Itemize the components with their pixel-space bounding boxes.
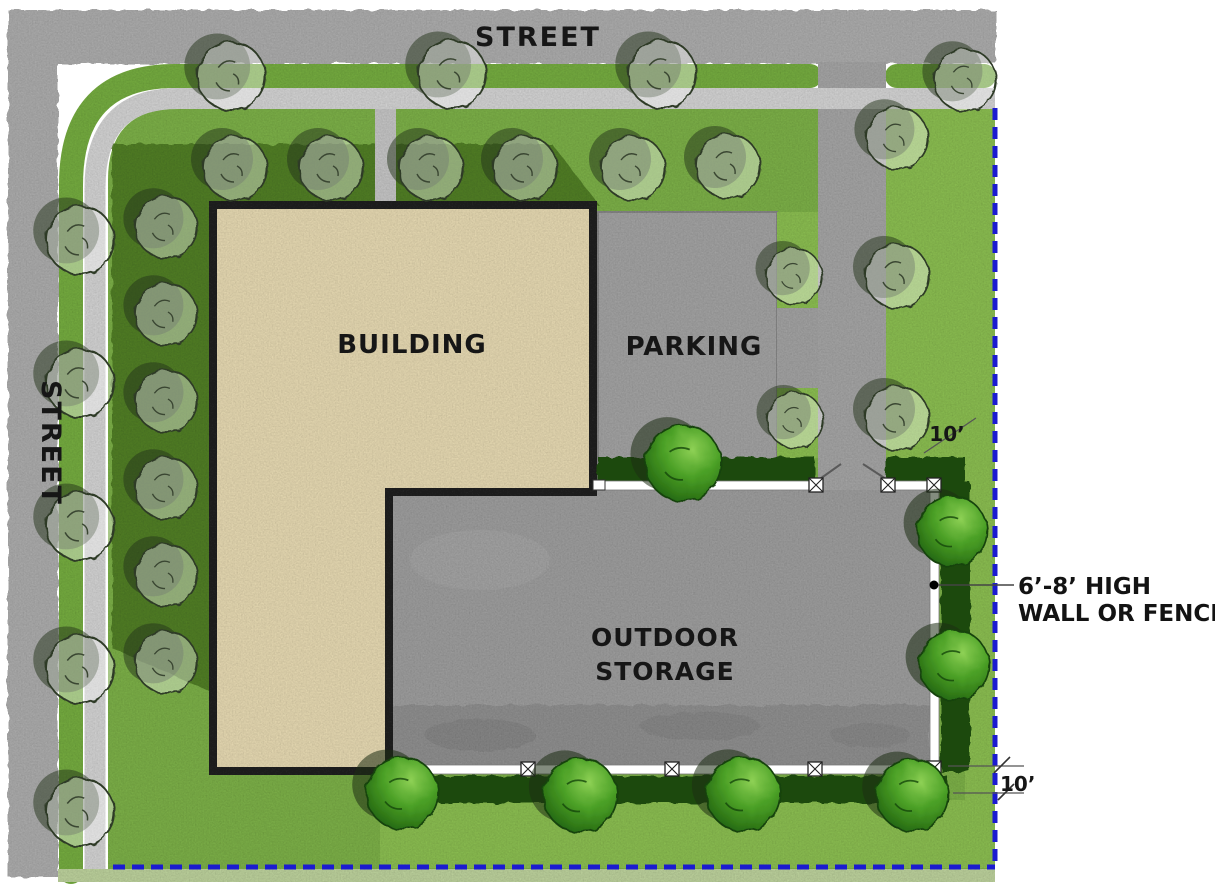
street-label-left: STREET (35, 380, 66, 506)
hedge-south (372, 776, 948, 803)
callout-anchor-dot (930, 581, 939, 590)
callout-line1: 6’-8’ HIGH (1018, 574, 1151, 600)
storage-label-line2: STORAGE (595, 657, 735, 686)
site-plan-page: 10’ 10’ 6’-8’ HIGH WALL OR FENCE STREET … (0, 0, 1215, 884)
lawn-pale-understrip (58, 869, 995, 882)
street-label-top: STREET (475, 22, 601, 53)
dim-east-label: 10’ (929, 422, 964, 446)
storage-stain (425, 719, 535, 751)
fence-post-icon (809, 478, 823, 492)
fence-post-icon (808, 762, 822, 776)
fence-end-cap (593, 480, 605, 490)
hedge-north-east (886, 457, 965, 482)
storage-stain (640, 712, 760, 740)
parking-label: PARKING (626, 332, 763, 362)
storage-light-patch (410, 530, 550, 590)
storage-label-line1: OUTDOOR (591, 623, 739, 652)
fence-post-icon (665, 762, 679, 776)
dim-south-label: 10’ (1000, 772, 1035, 796)
parking-driveway-connector (777, 308, 818, 388)
callout-line2: WALL OR FENCE (1018, 601, 1215, 627)
storage-stain (830, 723, 910, 747)
site-plan-drawing: 10’ 10’ 6’-8’ HIGH WALL OR FENCE STREET … (0, 0, 1215, 884)
building-label: BUILDING (337, 330, 487, 360)
fence-south (389, 765, 936, 774)
fence-post-icon (881, 478, 895, 492)
